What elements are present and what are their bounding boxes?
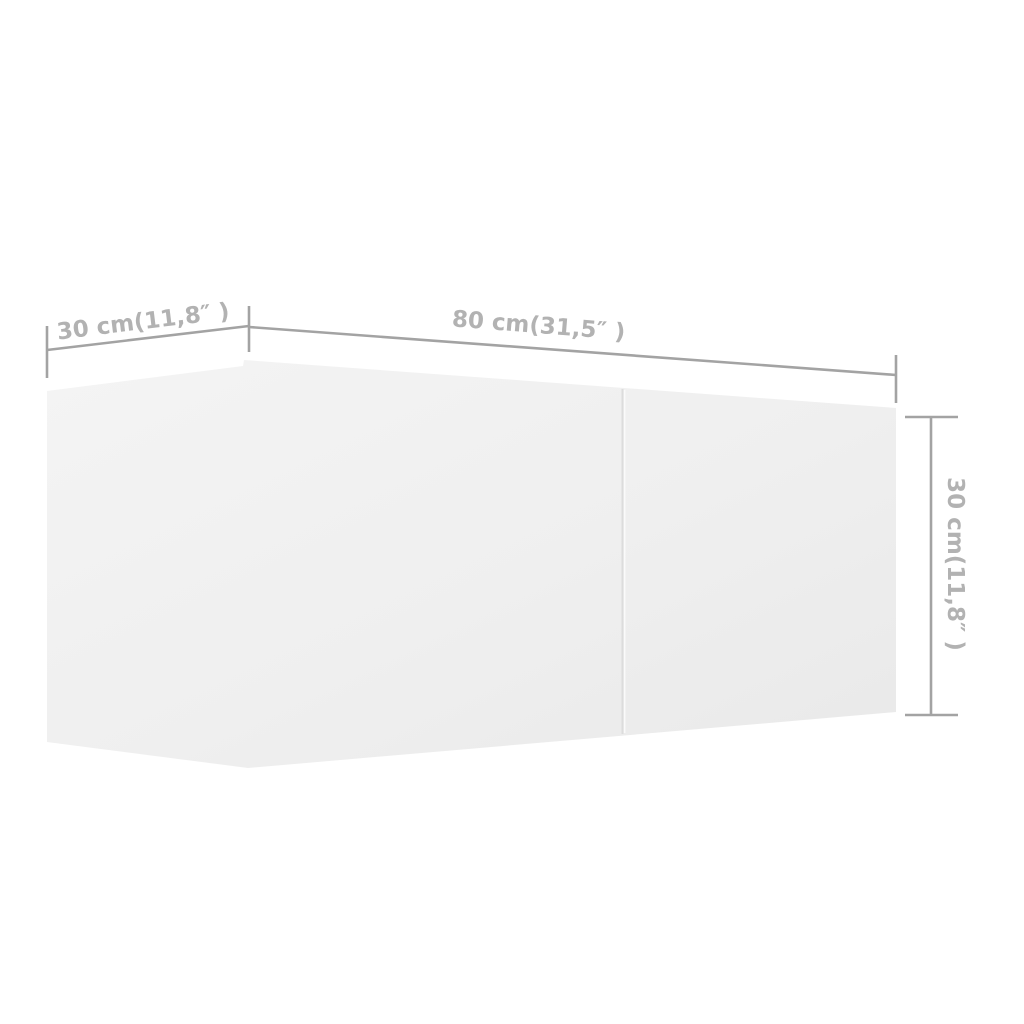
cabinet-body [47, 360, 896, 768]
dimension-depth: 30 cm(11,8″ ) [47, 299, 249, 378]
cabinet-dimension-diagram: 30 cm(11,8″ ) 80 cm(31,5″ ) 30 cm(11,8″ … [0, 0, 1024, 1024]
dimension-height-label: 30 cm(11,8″ ) [942, 477, 968, 651]
dimension-width-label: 80 cm(31,5″ ) [451, 306, 626, 346]
dimension-height: 30 cm(11,8″ ) [905, 417, 968, 715]
dimension-diagram-canvas: 30 cm(11,8″ ) 80 cm(31,5″ ) 30 cm(11,8″ … [0, 0, 1024, 1024]
cabinet [47, 360, 896, 768]
